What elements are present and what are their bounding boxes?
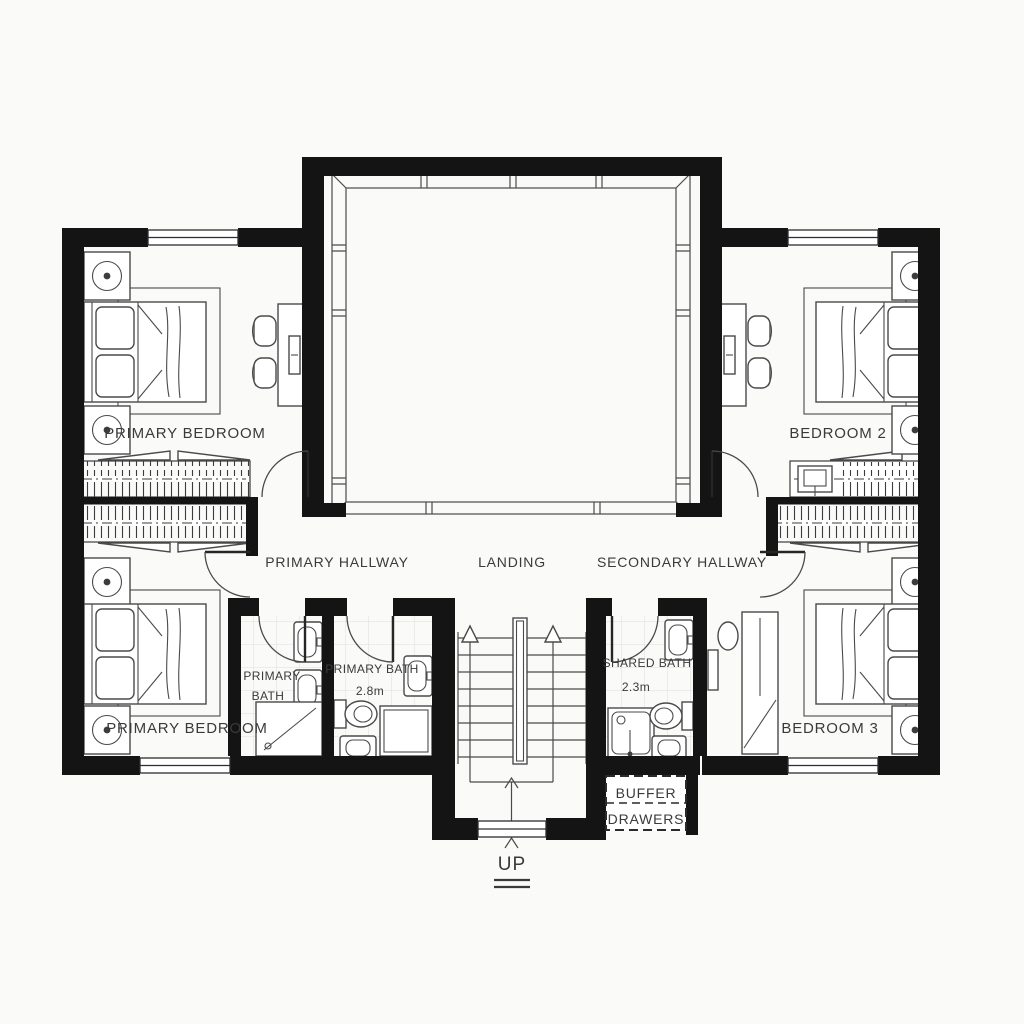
up-label: UP bbox=[498, 854, 526, 875]
buffer-label-line1: BUFFER bbox=[616, 785, 677, 801]
floor-plan-drawing: PRIMARY BEDROOM BEDROOM 2 PRIMARY BEDROO… bbox=[0, 0, 1024, 1024]
sink bbox=[294, 622, 322, 662]
buffer-label-line2: DRAWERS bbox=[608, 811, 685, 827]
sliding-door-indicator bbox=[178, 451, 250, 460]
window bbox=[478, 821, 546, 837]
up-arrow-icon bbox=[462, 626, 478, 642]
bedroom-top-left-furniture bbox=[84, 252, 303, 454]
chair bbox=[748, 358, 772, 388]
nightstand bbox=[84, 558, 130, 606]
direction-line bbox=[470, 642, 553, 848]
room-label-primary-bath-line2: 2.8m bbox=[356, 684, 384, 698]
wardrobe-left-bottom bbox=[78, 504, 252, 552]
room-label-shared-bath-line2: 2.3m bbox=[622, 680, 650, 694]
room-label-primary-bedroom-bottom: PRIMARY BEDROOM bbox=[106, 720, 267, 737]
desk bbox=[721, 304, 746, 406]
room-label-bedroom-2: BEDROOM 2 bbox=[789, 425, 886, 442]
room-label-secondary-hallway: SECONDARY HALLWAY bbox=[597, 554, 767, 570]
up-arrow-icon bbox=[545, 626, 561, 642]
sliding-door-indicator bbox=[98, 543, 170, 552]
sliding-door-indicator bbox=[178, 543, 250, 552]
up-underline bbox=[494, 880, 530, 887]
desk bbox=[278, 304, 303, 406]
bed bbox=[84, 302, 206, 402]
room-label-primary-hallway: PRIMARY HALLWAY bbox=[265, 554, 408, 570]
door-swing bbox=[262, 451, 308, 497]
sliding-door-indicator bbox=[790, 543, 860, 552]
chair bbox=[253, 358, 277, 388]
toilet bbox=[334, 700, 377, 728]
wall-mirror bbox=[708, 650, 718, 690]
window bbox=[788, 758, 878, 773]
walls bbox=[62, 157, 940, 840]
window bbox=[788, 230, 878, 245]
sliding-door-indicator bbox=[830, 451, 902, 460]
room-label-primary-bath-small-line1: PRIMARY bbox=[243, 669, 300, 683]
wardrobe-right-top bbox=[790, 451, 938, 497]
room-label-bedroom-3: BEDROOM 3 bbox=[781, 720, 878, 737]
dresser bbox=[742, 612, 778, 754]
chair bbox=[748, 316, 772, 346]
bed bbox=[84, 604, 206, 704]
room-label-primary-bath-line1: PRIMARY BATH bbox=[325, 662, 419, 676]
bedroom-top-right-furniture bbox=[721, 252, 938, 454]
staircase bbox=[458, 618, 586, 848]
chair bbox=[253, 316, 277, 346]
mullion-ticks bbox=[332, 174, 690, 514]
room-label-primary-bedroom-top: PRIMARY BEDROOM bbox=[104, 425, 265, 442]
room-label-shared-bath-line1: SHARED BATH bbox=[603, 656, 692, 670]
wardrobe-right-bottom bbox=[768, 504, 938, 552]
room-label-primary-bath-small-line2: BATH bbox=[252, 689, 285, 703]
wardrobe-left-top bbox=[78, 451, 250, 497]
bathtub bbox=[608, 708, 654, 758]
shower bbox=[380, 706, 432, 756]
sink bbox=[665, 620, 693, 660]
floor-plan: PRIMARY BEDROOM BEDROOM 2 PRIMARY BEDROO… bbox=[0, 0, 1024, 1024]
chair bbox=[718, 622, 738, 650]
window bbox=[148, 230, 238, 245]
stair-stringer bbox=[513, 618, 527, 764]
window bbox=[140, 758, 230, 773]
toilet bbox=[650, 702, 693, 730]
glazed-atrium bbox=[332, 174, 690, 514]
room-label-landing: LANDING bbox=[478, 554, 546, 570]
nightstand bbox=[84, 252, 130, 300]
